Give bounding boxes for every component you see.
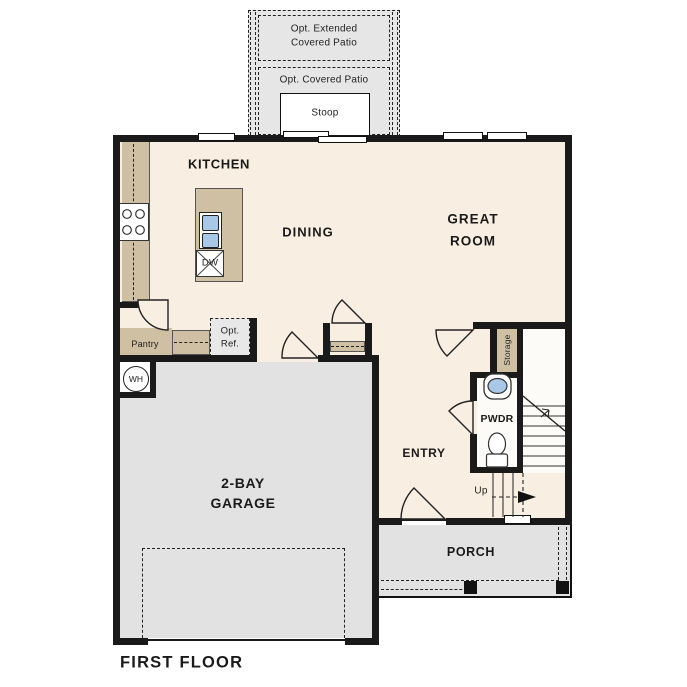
wall-entry-bottom-left <box>379 518 402 525</box>
wall-ref-jamb <box>250 318 257 362</box>
patio-column-left-a <box>250 12 251 135</box>
porch-edge-right <box>570 525 572 598</box>
porch-edge-bottom <box>379 596 572 598</box>
closet-shelf-dashed-line <box>331 346 364 347</box>
room-label-dining: DINING <box>282 225 334 240</box>
wall-right <box>565 135 572 525</box>
room-label-garage-2: GARAGE <box>210 495 275 511</box>
label-patio-extended-1: Opt. Extended <box>291 24 358 35</box>
label-dishwasher: DW <box>202 258 218 269</box>
room-label-storage: Storage <box>502 334 512 365</box>
wall-stair-left <box>517 329 523 473</box>
room-label-pantry: Pantry <box>131 339 158 349</box>
garage-door-opening-line <box>148 639 345 641</box>
floor-plan: WH <box>0 0 687 687</box>
wall-greatroom-bottom <box>473 322 572 329</box>
water-heater-label: WH <box>129 374 143 384</box>
wall-storage-left <box>490 329 497 378</box>
wall-garage-bottom-left <box>113 638 148 645</box>
front-door-opening-line <box>402 519 446 521</box>
room-label-kitchen: KITCHEN <box>188 157 250 172</box>
patio-column-right-b <box>397 12 398 135</box>
wall-pwdr-top <box>470 372 523 378</box>
window-kitchen <box>198 133 235 141</box>
room-label-pwdr: PWDR <box>481 413 514 425</box>
porch-post-right <box>556 581 569 594</box>
porch-dashed-col-b <box>566 527 567 580</box>
wall-pwdr-left-upper <box>470 378 477 401</box>
room-label-garage-1: 2-BAY <box>221 475 265 491</box>
room-label-porch: PORCH <box>447 545 495 559</box>
patio-column-right-a <box>392 12 393 135</box>
window-greatroom-1 <box>443 132 483 140</box>
label-opt-ref-1: Opt. <box>221 326 240 337</box>
label-stoop: Stoop <box>311 108 338 119</box>
wall-closet-right <box>365 323 372 362</box>
cooktop <box>119 203 149 241</box>
patio-column-left-b <box>255 12 256 135</box>
wall-garage-right <box>372 355 379 645</box>
island-sink-basin-top <box>202 215 219 231</box>
garage-door-dashed-outline <box>142 548 345 638</box>
wall-counter-stub <box>113 302 150 308</box>
label-opt-ref-2: Ref. <box>221 339 239 350</box>
wall-left <box>113 135 120 645</box>
label-patio-extended-2: Covered Patio <box>291 38 357 49</box>
hall-counter-dashed-line <box>174 342 208 343</box>
window-greatroom-2 <box>487 132 527 140</box>
sliding-door-panel-right <box>318 136 367 143</box>
wall-garage-top-left <box>113 355 257 362</box>
plan-title: FIRST FLOOR <box>120 654 243 673</box>
wall-garage-bottom-right <box>345 638 379 645</box>
water-heater-circle: WH <box>123 366 149 392</box>
room-label-entry: ENTRY <box>402 446 445 460</box>
room-label-greatroom-2: ROOM <box>450 234 496 249</box>
porch-step-threshold <box>504 515 531 524</box>
wall-wh-bottom <box>113 392 156 398</box>
wall-closet-left <box>323 323 330 362</box>
opt-ref-box <box>210 318 250 357</box>
porch-post-left <box>464 581 477 594</box>
label-stairs-up: Up <box>474 486 487 497</box>
porch-dashed-line-2 <box>381 589 477 590</box>
island-sink-basin-bottom <box>202 233 219 248</box>
stairs-floor <box>523 329 565 473</box>
room-label-greatroom-1: GREAT <box>447 212 498 227</box>
wall-pwdr-bottom <box>470 467 523 473</box>
label-patio-covered: Opt. Covered Patio <box>280 75 369 86</box>
porch-dashed-col-a <box>558 527 559 580</box>
